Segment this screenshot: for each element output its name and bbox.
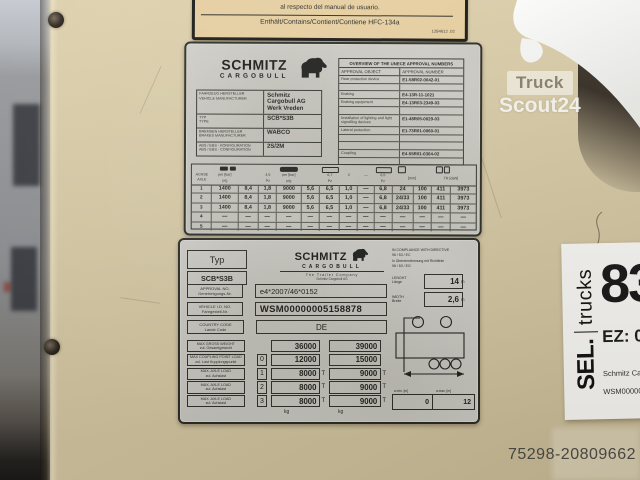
building-window — [11, 247, 37, 311]
brake-chamber-icon — [220, 167, 228, 171]
id-field-row: COUNTRY CODE Lande Code DE — [187, 320, 387, 334]
a-max-box: 12 — [432, 394, 475, 410]
elephant-logo-icon — [351, 248, 369, 262]
brand-name-2: CARGOBULL — [206, 73, 302, 80]
hub-icon — [436, 166, 443, 173]
t-flag: T — [320, 381, 326, 393]
axle-row: 31400 8,41,8 90005,6 6,51,0 —6,8 24/3310… — [192, 202, 476, 212]
field-label: APPROVAL NO. Genehmigungs-Nr. — [187, 284, 243, 298]
info-value: WABCO — [264, 129, 321, 142]
brand-name: SCHMITZ — [206, 57, 302, 73]
axle-index: 3 — [257, 395, 268, 407]
sel-trucks-logo: SEL. trucks — [570, 244, 602, 415]
tyre-outline-icon — [376, 167, 392, 173]
hfc-contains-line: Enthält/Contains/Contient/Contiene HFC-1… — [195, 18, 465, 27]
elephant-logo-icon — [298, 56, 328, 80]
logo-divider — [574, 331, 598, 333]
info-value: Schmitz Cargobull AG Werk Vreden — [264, 91, 321, 114]
axle-col-label: ACHSE — [196, 173, 208, 177]
rim-icon — [398, 166, 406, 173]
sel-logo-text: SEL. — [572, 338, 601, 390]
card-model-line: Schmitz Cargo — [603, 368, 640, 378]
hfc-refrigerant-plate: al respecto del manual de usuario. Enthä… — [192, 0, 468, 42]
screw-icon — [44, 339, 60, 355]
trailer-diagram — [388, 310, 472, 388]
info-row: BREMSEN HERSTELLER BRAKES MANUFACTURER W… — [197, 127, 321, 141]
tyre-icon — [280, 166, 298, 171]
unit-label: pm [bar] — [218, 173, 231, 177]
weight-value-a: 12000 — [271, 354, 320, 366]
coupling-icon — [444, 166, 450, 173]
unit-label: 6,7 — [327, 173, 332, 177]
tyre-outline-icon — [322, 166, 339, 172]
weight-row: MAX COUPLING POINT LOAD zul. Last Kupplu… — [187, 354, 387, 366]
field-label: VEHICLE I.D. NO. Fahrgestell-Nr. — [187, 302, 243, 316]
t-flag: T — [381, 381, 387, 393]
axle-index: 1 — [257, 368, 268, 380]
col-approval-number: APPROVAL NUMBER — [400, 68, 463, 75]
brand-company: Schmitz Cargobull AG — [280, 277, 384, 281]
width-label: WIDTH Breite — [392, 295, 420, 304]
width-unit: m — [461, 297, 465, 302]
field-value: DE — [256, 320, 387, 334]
unit-label: pm [bar] — [282, 173, 295, 177]
info-value: SCB*S3B — [264, 115, 321, 128]
info-row: FAHRZEUG HERSTELLER VEHICLE MANUFACTURER… — [197, 91, 321, 114]
length-label: LENGHT Länge — [392, 276, 420, 285]
info-label: TYP TYPE — [197, 114, 264, 127]
weight-label: MAX. AXLE LOAD zul. Achslast — [187, 381, 245, 393]
t-flag: T — [381, 395, 387, 407]
field-value: WSM00000005158878 — [255, 302, 387, 316]
weight-value-a: 8000 — [271, 395, 320, 407]
axle-table-header: ACHSE AXLE pm [bar] 4,5 pm [bar] 6,7 2 —… — [192, 165, 476, 187]
hfc-spanish-line: al respecto del manual de usuario. — [195, 3, 465, 12]
manufacturer-info-table: FAHRZEUG HERSTELLER VEHICLE MANUFACTURER… — [196, 90, 322, 157]
weight-label: MAX GROSS WEIGHT zul. Gesamtgewicht — [187, 340, 245, 352]
brand-name-2: CARGOBULL — [280, 264, 384, 270]
typ-box: Typ — [187, 250, 247, 269]
approvals-rows: Rear protection device E1-58R02-0042-01 … — [339, 76, 463, 164]
axle-row: 21400 8,41,8 90005,6 6,51,0 —6,8 24/3310… — [192, 193, 476, 203]
info-label: ABS / EBS - KONFIGURATION ABS / EBS - CO… — [197, 142, 264, 155]
weight-row: MAX. AXLE LOAD zul. Achslast 3 8000 T 90… — [187, 395, 387, 407]
a-max-label: a max. [m] — [436, 389, 451, 393]
unit-kg: kg — [338, 409, 343, 415]
weight-row: MAX GROSS WEIGHT zul. Gesamtgewicht 3600… — [187, 340, 387, 352]
weight-value-a: 8000 — [271, 368, 320, 380]
vin-plate: Typ SCB*S3B SCHMITZ CARGOBULL The Traile… — [178, 238, 480, 424]
info-row: ABS / EBS - KONFIGURATION ABS / EBS - CO… — [197, 141, 321, 155]
head-label: Pz — [328, 179, 332, 183]
panel-edge-shadow — [40, 0, 58, 480]
screw-icon — [48, 12, 64, 28]
weight-value-b: 15000 — [329, 354, 381, 366]
head-label: p/g — [222, 179, 227, 183]
id-field-row: VEHICLE I.D. NO. Fahrgestell-Nr. WSM0000… — [187, 302, 387, 316]
field-label: COUNTRY CODE Lande Code — [187, 320, 244, 334]
compliance-line: 96 / 53 / EG — [392, 264, 466, 269]
axle-rows: 11400 8,41,8 90005,6 6,51,0 —6,8 24100 4… — [192, 185, 476, 232]
head-label: Pz — [266, 179, 270, 183]
weight-value-b: 9000 — [329, 381, 381, 393]
brake-chamber-icon — [230, 167, 236, 171]
col-approval-object: APPROVAL OBJECT — [339, 68, 400, 75]
info-value: 2S/2M — [264, 143, 321, 156]
a-min-box: 0 — [392, 394, 433, 410]
head-label: p/g — [286, 179, 291, 183]
weight-value-a: 8000 — [271, 381, 320, 393]
axle-row: 11400 8,41,8 90005,6 6,51,0 —6,8 24100 4… — [192, 185, 476, 194]
width-value-box: 2,6 — [424, 292, 463, 307]
unit-label: 2 — [348, 173, 350, 177]
weight-row: MAX. AXLE LOAD zul. Achslast 2 8000 T 90… — [187, 381, 387, 393]
field-value: e4*2007/46*0152 — [255, 284, 387, 298]
hfc-part-code: 1284612 .02 — [432, 29, 455, 34]
weight-label: MAX. AXLE LOAD zul. Achslast — [187, 368, 245, 380]
weight-table: MAX GROSS WEIGHT zul. Gesamtgewicht 3600… — [187, 340, 387, 409]
weight-value-b: 39000 — [329, 340, 381, 352]
watermark-truck: Truck — [507, 71, 573, 95]
length-value-box: 14 — [424, 274, 463, 289]
id-field-row: APPROVAL NO. Genehmigungs-Nr. e4*2007/46… — [187, 284, 387, 298]
t-flag: T — [381, 368, 387, 380]
brand-name: SCHMITZ — [295, 251, 347, 263]
t-flag: T — [320, 395, 326, 407]
approvals-table: OVERVIEW OF THE UNECE APPROVAL NUMBERS A… — [338, 58, 464, 165]
unit-kg: kg — [284, 409, 289, 415]
unit-label: 4,5 — [265, 173, 270, 177]
building-window — [13, 104, 40, 186]
info-row: TYP TYPE SCB*S3B — [197, 113, 321, 127]
compliance-text: IN COMPLIANCE WITH DIRECTIVE 96 / 53 / E… — [392, 248, 466, 269]
axle-row: 5— —— —— —— —— —— —— — [192, 221, 476, 231]
approval-row: Installation of lighting and light signa… — [339, 115, 463, 128]
type-plate: SCHMITZ CARGOBULL FAHRZEUG HERSTELLER VE… — [184, 41, 483, 236]
listing-id: 75298-20809662 — [0, 446, 636, 464]
photo-stage: Truck Scout24 al respecto del manual de … — [0, 0, 640, 480]
weight-value-a: 36000 — [271, 340, 320, 352]
t-flag: T — [320, 368, 326, 380]
schmitz-logo: SCHMITZ CARGOBULL The Trailer Company Sc… — [280, 247, 384, 281]
divider — [201, 14, 453, 17]
weight-row: MAX. AXLE LOAD zul. Achslast 1 8000 T 90… — [187, 368, 387, 380]
weight-label: MAX. AXLE LOAD zul. Achslast — [187, 395, 245, 407]
wall-mark — [4, 282, 10, 292]
unit-label: 6,5 — [380, 173, 385, 177]
info-label: BREMSEN HERSTELLER BRAKES MANUFACTURER — [197, 128, 264, 141]
head-label: Pz — [381, 179, 385, 183]
tr-head-label: TR [daN] — [444, 176, 458, 180]
axle-col-label2: AXLE — [197, 178, 206, 182]
dealer-tag-card: SEL. trucks 83 EZ: 0 Schmitz Cargo WSM00… — [561, 242, 640, 420]
trucks-logo-text: trucks — [573, 269, 597, 326]
axle-index: 2 — [257, 381, 268, 393]
schmitz-logo: SCHMITZ CARGOBULL — [206, 57, 302, 80]
card-vin-line: WSM0000000 — [603, 386, 640, 396]
first-registration: EZ: 0 — [602, 326, 640, 347]
typ-value-box: SCB*S3B — [187, 271, 247, 285]
axle-table: ACHSE AXLE pm [bar] 4,5 pm [bar] 6,7 2 —… — [191, 164, 477, 231]
length-unit: m — [461, 279, 465, 284]
weight-value-b: 9000 — [329, 395, 381, 407]
a-min-label: a min. [m] — [394, 389, 408, 393]
axle-index: 0 — [257, 354, 268, 366]
axle-row: 4— —— —— —— —— —— —— — [192, 212, 476, 222]
id-fields: APPROVAL NO. Genehmigungs-Nr. e4*2007/46… — [187, 284, 387, 338]
axle-index — [257, 340, 268, 352]
stock-number: 83 — [599, 256, 640, 311]
mm-head-label: [mm] — [408, 176, 416, 180]
approvals-title: OVERVIEW OF THE UNECE APPROVAL NUMBERS — [339, 59, 463, 68]
weight-label: MAX COUPLING POINT LOAD zul. Last Kupplu… — [187, 354, 245, 366]
info-label: FAHRZEUG HERSTELLER VEHICLE MANUFACTURER — [197, 91, 264, 114]
watermark-scout24: Scout24 — [499, 94, 581, 118]
unit-label: — — [364, 173, 368, 177]
weight-value-b: 9000 — [329, 368, 381, 380]
